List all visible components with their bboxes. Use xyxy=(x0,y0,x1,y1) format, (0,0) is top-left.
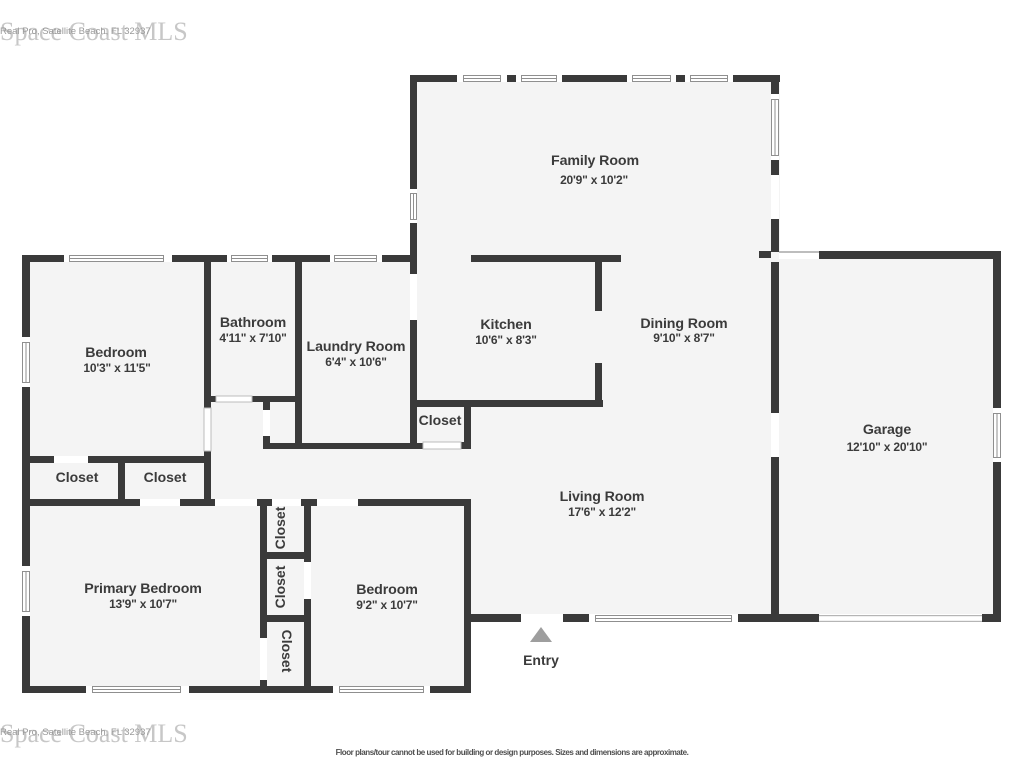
svg-text:Floor plans/tour cannot be use: Floor plans/tour cannot be used for buil… xyxy=(336,748,689,757)
svg-text:Bedroom: Bedroom xyxy=(85,345,147,361)
svg-text:12'10" x 20'10": 12'10" x 20'10" xyxy=(847,440,928,454)
svg-text:Bathroom: Bathroom xyxy=(220,315,286,331)
svg-text:Laundry Room: Laundry Room xyxy=(307,339,406,355)
svg-text:10'6" x 8'3": 10'6" x 8'3" xyxy=(475,333,536,347)
svg-text:17'6" x 12'2": 17'6" x 12'2" xyxy=(568,505,636,519)
svg-text:10'3" x 11'5": 10'3" x 11'5" xyxy=(83,361,150,375)
svg-text:13'9" x 10'7": 13'9" x 10'7" xyxy=(109,597,177,611)
svg-text:Closet: Closet xyxy=(419,412,462,428)
svg-text:Closet: Closet xyxy=(279,630,295,673)
svg-text:Dining Room: Dining Room xyxy=(640,316,727,332)
svg-text:Closet: Closet xyxy=(272,565,288,608)
svg-text:9'10" x 8'7": 9'10" x 8'7" xyxy=(653,331,714,345)
svg-text:20'9" x 10'2": 20'9" x 10'2" xyxy=(560,173,628,187)
svg-text:Real Pro, Satellite Beach, FL: Real Pro, Satellite Beach, FL 32937 xyxy=(0,727,151,738)
svg-text:9'2" x 10'7": 9'2" x 10'7" xyxy=(356,598,417,612)
svg-text:Closet: Closet xyxy=(56,469,99,485)
svg-text:Family Room: Family Room xyxy=(551,153,639,169)
svg-text:4'11" x 7'10": 4'11" x 7'10" xyxy=(219,331,286,345)
svg-text:Closet: Closet xyxy=(272,506,288,549)
svg-text:Garage: Garage xyxy=(863,422,912,438)
svg-text:Closet: Closet xyxy=(144,469,187,485)
svg-text:Primary Bedroom: Primary Bedroom xyxy=(84,581,202,597)
svg-text:Entry: Entry xyxy=(523,652,559,668)
svg-text:6'4" x 10'6": 6'4" x 10'6" xyxy=(325,355,386,369)
svg-text:Living Room: Living Room xyxy=(560,489,645,505)
svg-text:Kitchen: Kitchen xyxy=(480,317,531,333)
svg-text:Bedroom: Bedroom xyxy=(356,582,418,598)
svg-text:Real Pro, Satellite Beach, FL: Real Pro, Satellite Beach, FL 32937 xyxy=(0,26,151,37)
